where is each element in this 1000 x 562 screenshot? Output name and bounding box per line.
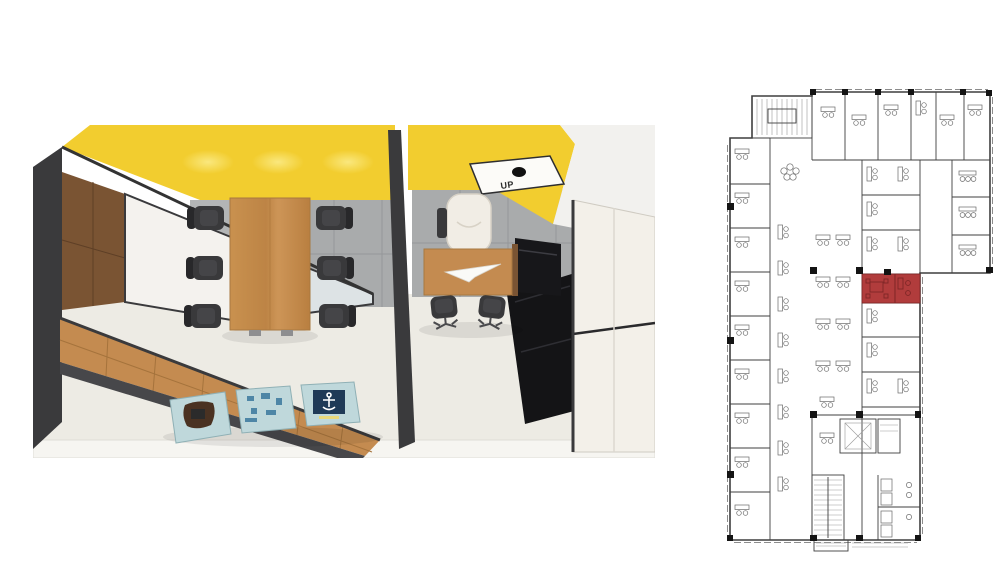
up-sign-label: UP — [500, 179, 515, 191]
tv-panel — [515, 238, 561, 296]
ceiling-yellow-left — [62, 125, 395, 200]
page: UP — [0, 0, 1000, 562]
interior-render-svg: UP — [33, 122, 655, 458]
entry-canopy — [814, 540, 908, 551]
office-desk — [424, 249, 512, 295]
floor-plan-svg — [712, 85, 995, 560]
ceiling-light — [322, 150, 374, 174]
wardrobe-panels — [573, 200, 655, 452]
up-sign-dot — [512, 167, 526, 177]
poster-anchor — [301, 382, 360, 426]
meeting-chair — [319, 304, 356, 328]
poster-map — [236, 386, 296, 433]
meeting-chair — [186, 256, 223, 280]
floor-plan — [712, 85, 995, 560]
ceiling-light — [252, 150, 304, 174]
left-wall-dark-slab — [33, 147, 62, 449]
meeting-table — [222, 198, 318, 344]
poster-badge — [170, 392, 231, 443]
highlight-meeting-room — [862, 274, 895, 303]
meeting-chair — [316, 206, 353, 230]
ceiling-light — [182, 150, 234, 174]
interior-render: UP — [33, 122, 655, 458]
highlighted-rooms — [862, 274, 920, 303]
meeting-chair — [187, 206, 224, 230]
meeting-chair — [317, 256, 354, 280]
meeting-chair — [184, 304, 221, 328]
